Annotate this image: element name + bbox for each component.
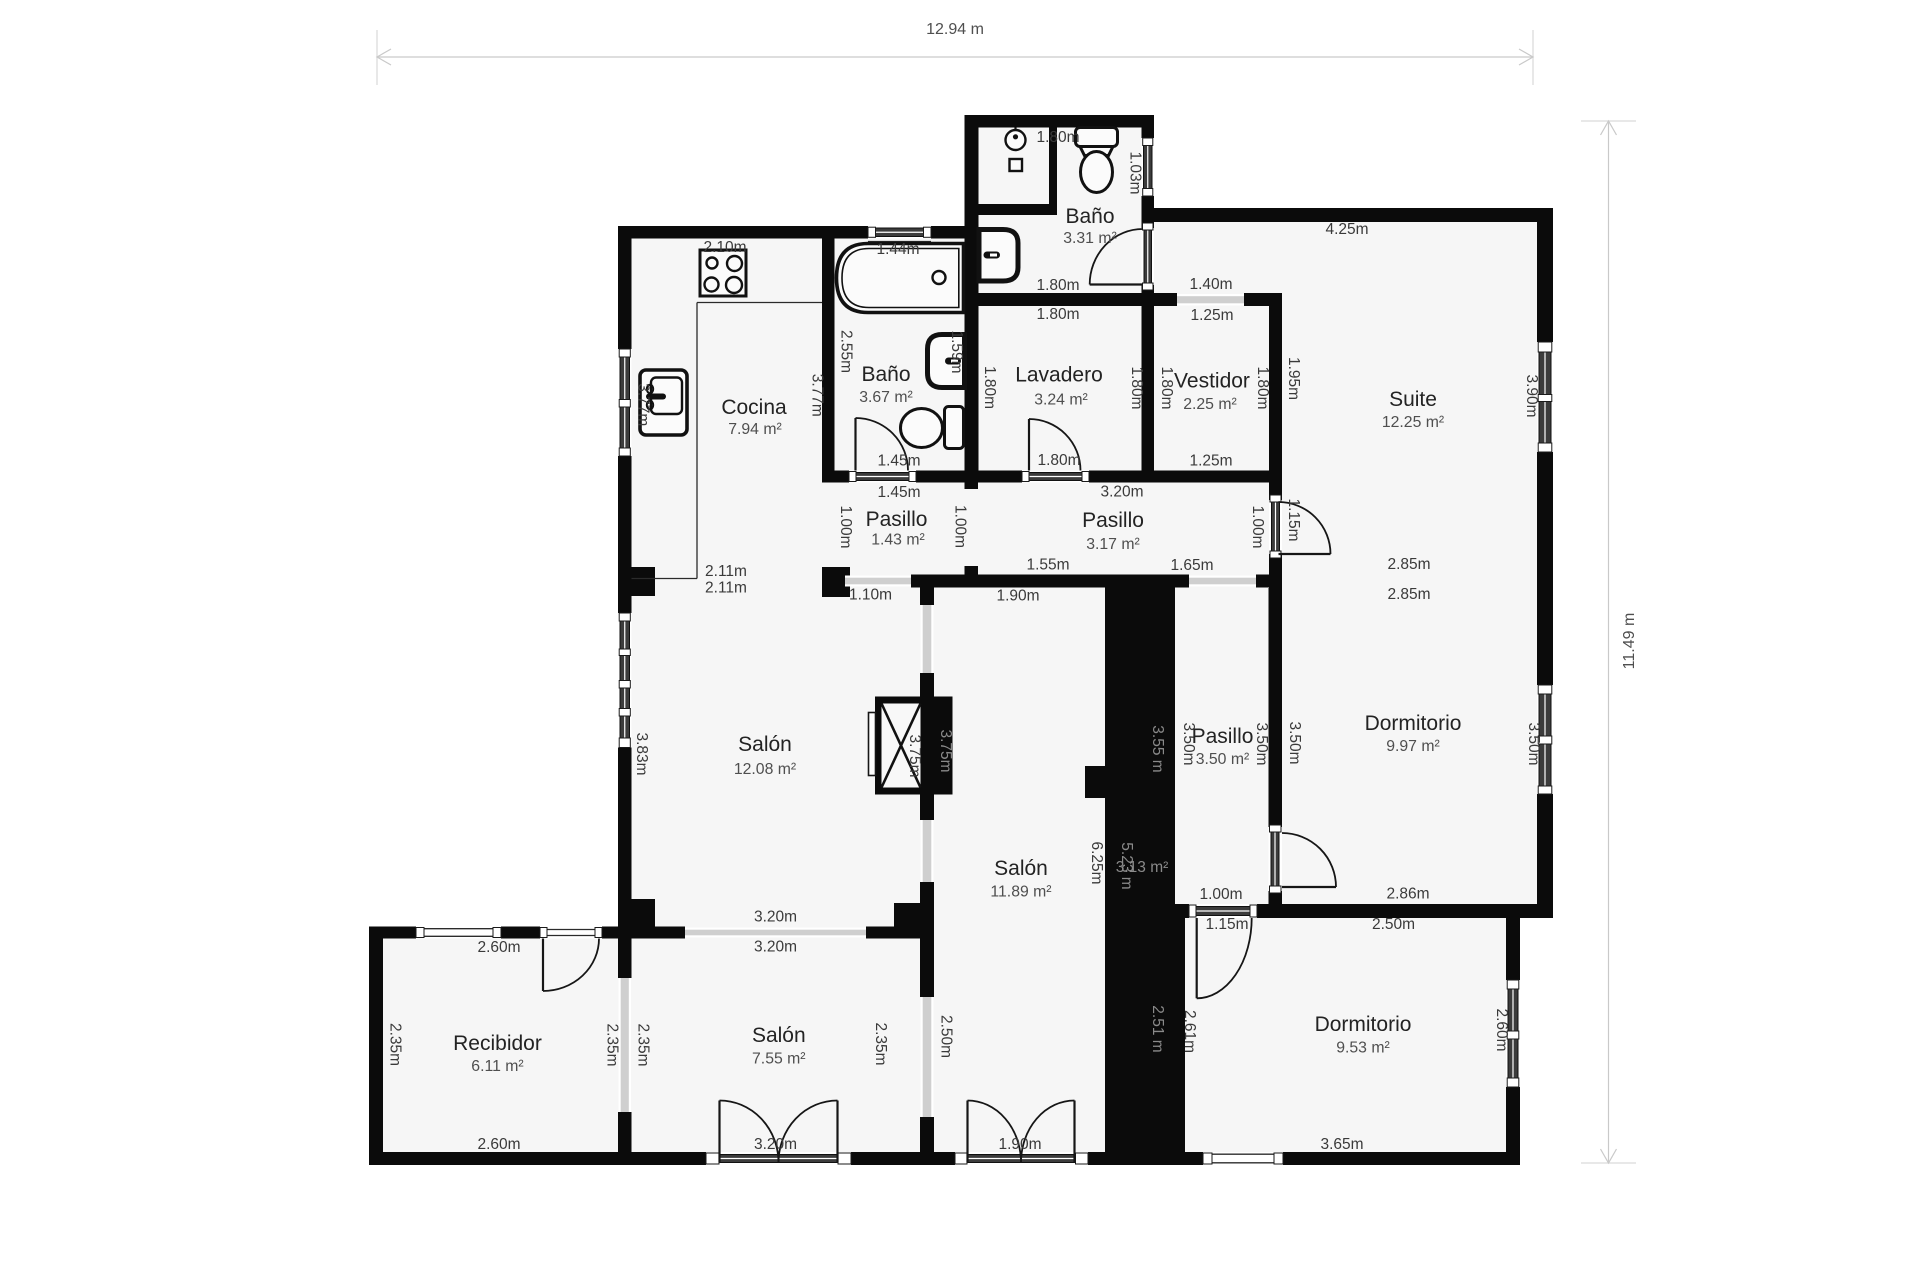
svg-text:1.95m: 1.95m xyxy=(1285,357,1302,400)
svg-text:12.08 m²: 12.08 m² xyxy=(734,761,796,778)
svg-text:3.65m: 3.65m xyxy=(1320,1136,1363,1153)
svg-text:Suite: Suite xyxy=(1389,388,1437,411)
svg-text:1.40m: 1.40m xyxy=(1189,276,1232,293)
svg-text:1.80m: 1.80m xyxy=(1036,306,1079,323)
svg-text:2.11m: 2.11m xyxy=(705,563,747,580)
svg-text:1.90m: 1.90m xyxy=(996,588,1039,605)
svg-text:3.13 m²: 3.13 m² xyxy=(1116,859,1169,876)
svg-text:2.10m: 2.10m xyxy=(703,239,746,256)
svg-text:3.20m: 3.20m xyxy=(754,939,797,956)
svg-text:3.77m: 3.77m xyxy=(635,383,652,426)
svg-text:1.25m: 1.25m xyxy=(1189,453,1232,470)
svg-text:3.20m: 3.20m xyxy=(1100,484,1143,501)
svg-text:2.35m: 2.35m xyxy=(872,1022,889,1065)
svg-text:Salón: Salón xyxy=(752,1024,806,1047)
svg-text:2.60m: 2.60m xyxy=(477,939,520,956)
svg-text:Baño: Baño xyxy=(861,363,910,386)
svg-text:Dormitorio: Dormitorio xyxy=(1365,712,1462,735)
svg-text:7.94 m²: 7.94 m² xyxy=(728,421,782,438)
svg-text:3.90m: 3.90m xyxy=(1523,374,1540,417)
svg-text:Pasillo: Pasillo xyxy=(1082,509,1144,532)
svg-text:2.61m: 2.61m xyxy=(1181,1010,1198,1053)
svg-text:3.50m: 3.50m xyxy=(1286,721,1303,764)
svg-text:2.51 m: 2.51 m xyxy=(1149,1005,1166,1052)
svg-text:11.89 m²: 11.89 m² xyxy=(990,884,1051,901)
svg-text:Pasillo: Pasillo xyxy=(1192,725,1254,748)
svg-text:Vestidor: Vestidor xyxy=(1174,370,1250,393)
svg-text:Lavadero: Lavadero xyxy=(1015,364,1103,387)
svg-text:12.94 m: 12.94 m xyxy=(926,21,984,38)
svg-text:1.25m: 1.25m xyxy=(1190,307,1233,324)
svg-text:2.85m: 2.85m xyxy=(1387,556,1430,573)
svg-text:Pasillo: Pasillo xyxy=(866,508,928,531)
svg-text:3.50m: 3.50m xyxy=(1253,722,1270,765)
svg-text:3.50m: 3.50m xyxy=(1525,722,1542,765)
svg-text:1.80m: 1.80m xyxy=(1128,366,1145,409)
svg-text:3.77m: 3.77m xyxy=(809,374,826,417)
svg-text:1.80m: 1.80m xyxy=(1254,366,1271,409)
svg-text:3.75m: 3.75m xyxy=(937,729,954,772)
svg-text:3.75m: 3.75m xyxy=(906,734,923,777)
svg-text:1.00m: 1.00m xyxy=(837,505,854,548)
svg-text:9.53 m²: 9.53 m² xyxy=(1336,1040,1390,1057)
svg-text:1.00m: 1.00m xyxy=(1199,886,1242,903)
svg-text:2.35m: 2.35m xyxy=(387,1023,404,1066)
svg-text:1.80m: 1.80m xyxy=(1158,366,1175,409)
svg-text:Baño: Baño xyxy=(1065,205,1114,228)
svg-text:1.15m: 1.15m xyxy=(1285,498,1302,541)
svg-text:2.60m: 2.60m xyxy=(477,1136,520,1153)
svg-text:3.50 m²: 3.50 m² xyxy=(1196,751,1250,768)
svg-text:3.20m: 3.20m xyxy=(754,1136,797,1153)
svg-text:3.67 m²: 3.67 m² xyxy=(859,389,913,406)
svg-text:1.80m: 1.80m xyxy=(981,366,998,409)
svg-text:1.00m: 1.00m xyxy=(952,505,969,548)
svg-text:11.49 m: 11.49 m xyxy=(1621,613,1638,670)
svg-text:Cocina: Cocina xyxy=(721,396,787,419)
svg-text:3.31 m²: 3.31 m² xyxy=(1063,230,1117,247)
svg-text:1.44m: 1.44m xyxy=(876,241,919,258)
svg-text:9.97 m²: 9.97 m² xyxy=(1386,738,1440,755)
svg-text:3.20m: 3.20m xyxy=(754,909,797,926)
svg-text:1.55m: 1.55m xyxy=(1026,557,1069,574)
svg-text:Salón: Salón xyxy=(994,857,1048,880)
svg-text:2.50m: 2.50m xyxy=(1372,916,1415,933)
svg-text:3.17 m²: 3.17 m² xyxy=(1086,536,1140,553)
svg-text:1.90m: 1.90m xyxy=(998,1136,1041,1153)
svg-text:7.55 m²: 7.55 m² xyxy=(752,1051,806,1068)
svg-text:1.43 m²: 1.43 m² xyxy=(871,532,925,549)
svg-text:1.00m: 1.00m xyxy=(1249,505,1266,548)
svg-text:2.35m: 2.35m xyxy=(635,1023,652,1066)
svg-text:1.80m: 1.80m xyxy=(1036,277,1079,294)
svg-text:2.25 m²: 2.25 m² xyxy=(1183,396,1237,413)
svg-text:1.45m: 1.45m xyxy=(877,453,920,470)
svg-text:1.80m: 1.80m xyxy=(1036,129,1079,146)
svg-text:12.25 m²: 12.25 m² xyxy=(1382,414,1444,431)
svg-text:2.55m: 2.55m xyxy=(837,330,854,373)
svg-text:3.24 m²: 3.24 m² xyxy=(1034,392,1088,409)
svg-text:2.60m: 2.60m xyxy=(1493,1008,1510,1051)
svg-text:1.15m: 1.15m xyxy=(1205,916,1248,933)
svg-text:3.83m: 3.83m xyxy=(633,732,650,775)
svg-text:2.35m: 2.35m xyxy=(604,1023,621,1066)
svg-text:3.55 m: 3.55 m xyxy=(1149,725,1166,772)
svg-text:4.25m: 4.25m xyxy=(1325,221,1368,238)
svg-text:1.45m: 1.45m xyxy=(877,484,920,501)
svg-text:1.59m: 1.59m xyxy=(948,330,965,373)
svg-text:6.25m: 6.25m xyxy=(1088,841,1105,884)
svg-text:2.11m: 2.11m xyxy=(705,580,747,597)
svg-text:1.65m: 1.65m xyxy=(1170,557,1213,574)
svg-text:1.80m: 1.80m xyxy=(1037,452,1080,469)
svg-text:Salón: Salón xyxy=(738,733,792,756)
svg-text:1.03m: 1.03m xyxy=(1127,151,1144,194)
svg-text:2.50m: 2.50m xyxy=(938,1015,955,1058)
svg-text:6.11 m²: 6.11 m² xyxy=(471,1058,523,1075)
svg-text:2.85m: 2.85m xyxy=(1387,586,1430,603)
svg-text:Recibidor: Recibidor xyxy=(453,1032,542,1055)
svg-text:1.10m: 1.10m xyxy=(849,587,892,604)
svg-text:2.86m: 2.86m xyxy=(1386,886,1429,903)
svg-text:Dormitorio: Dormitorio xyxy=(1315,1013,1412,1036)
